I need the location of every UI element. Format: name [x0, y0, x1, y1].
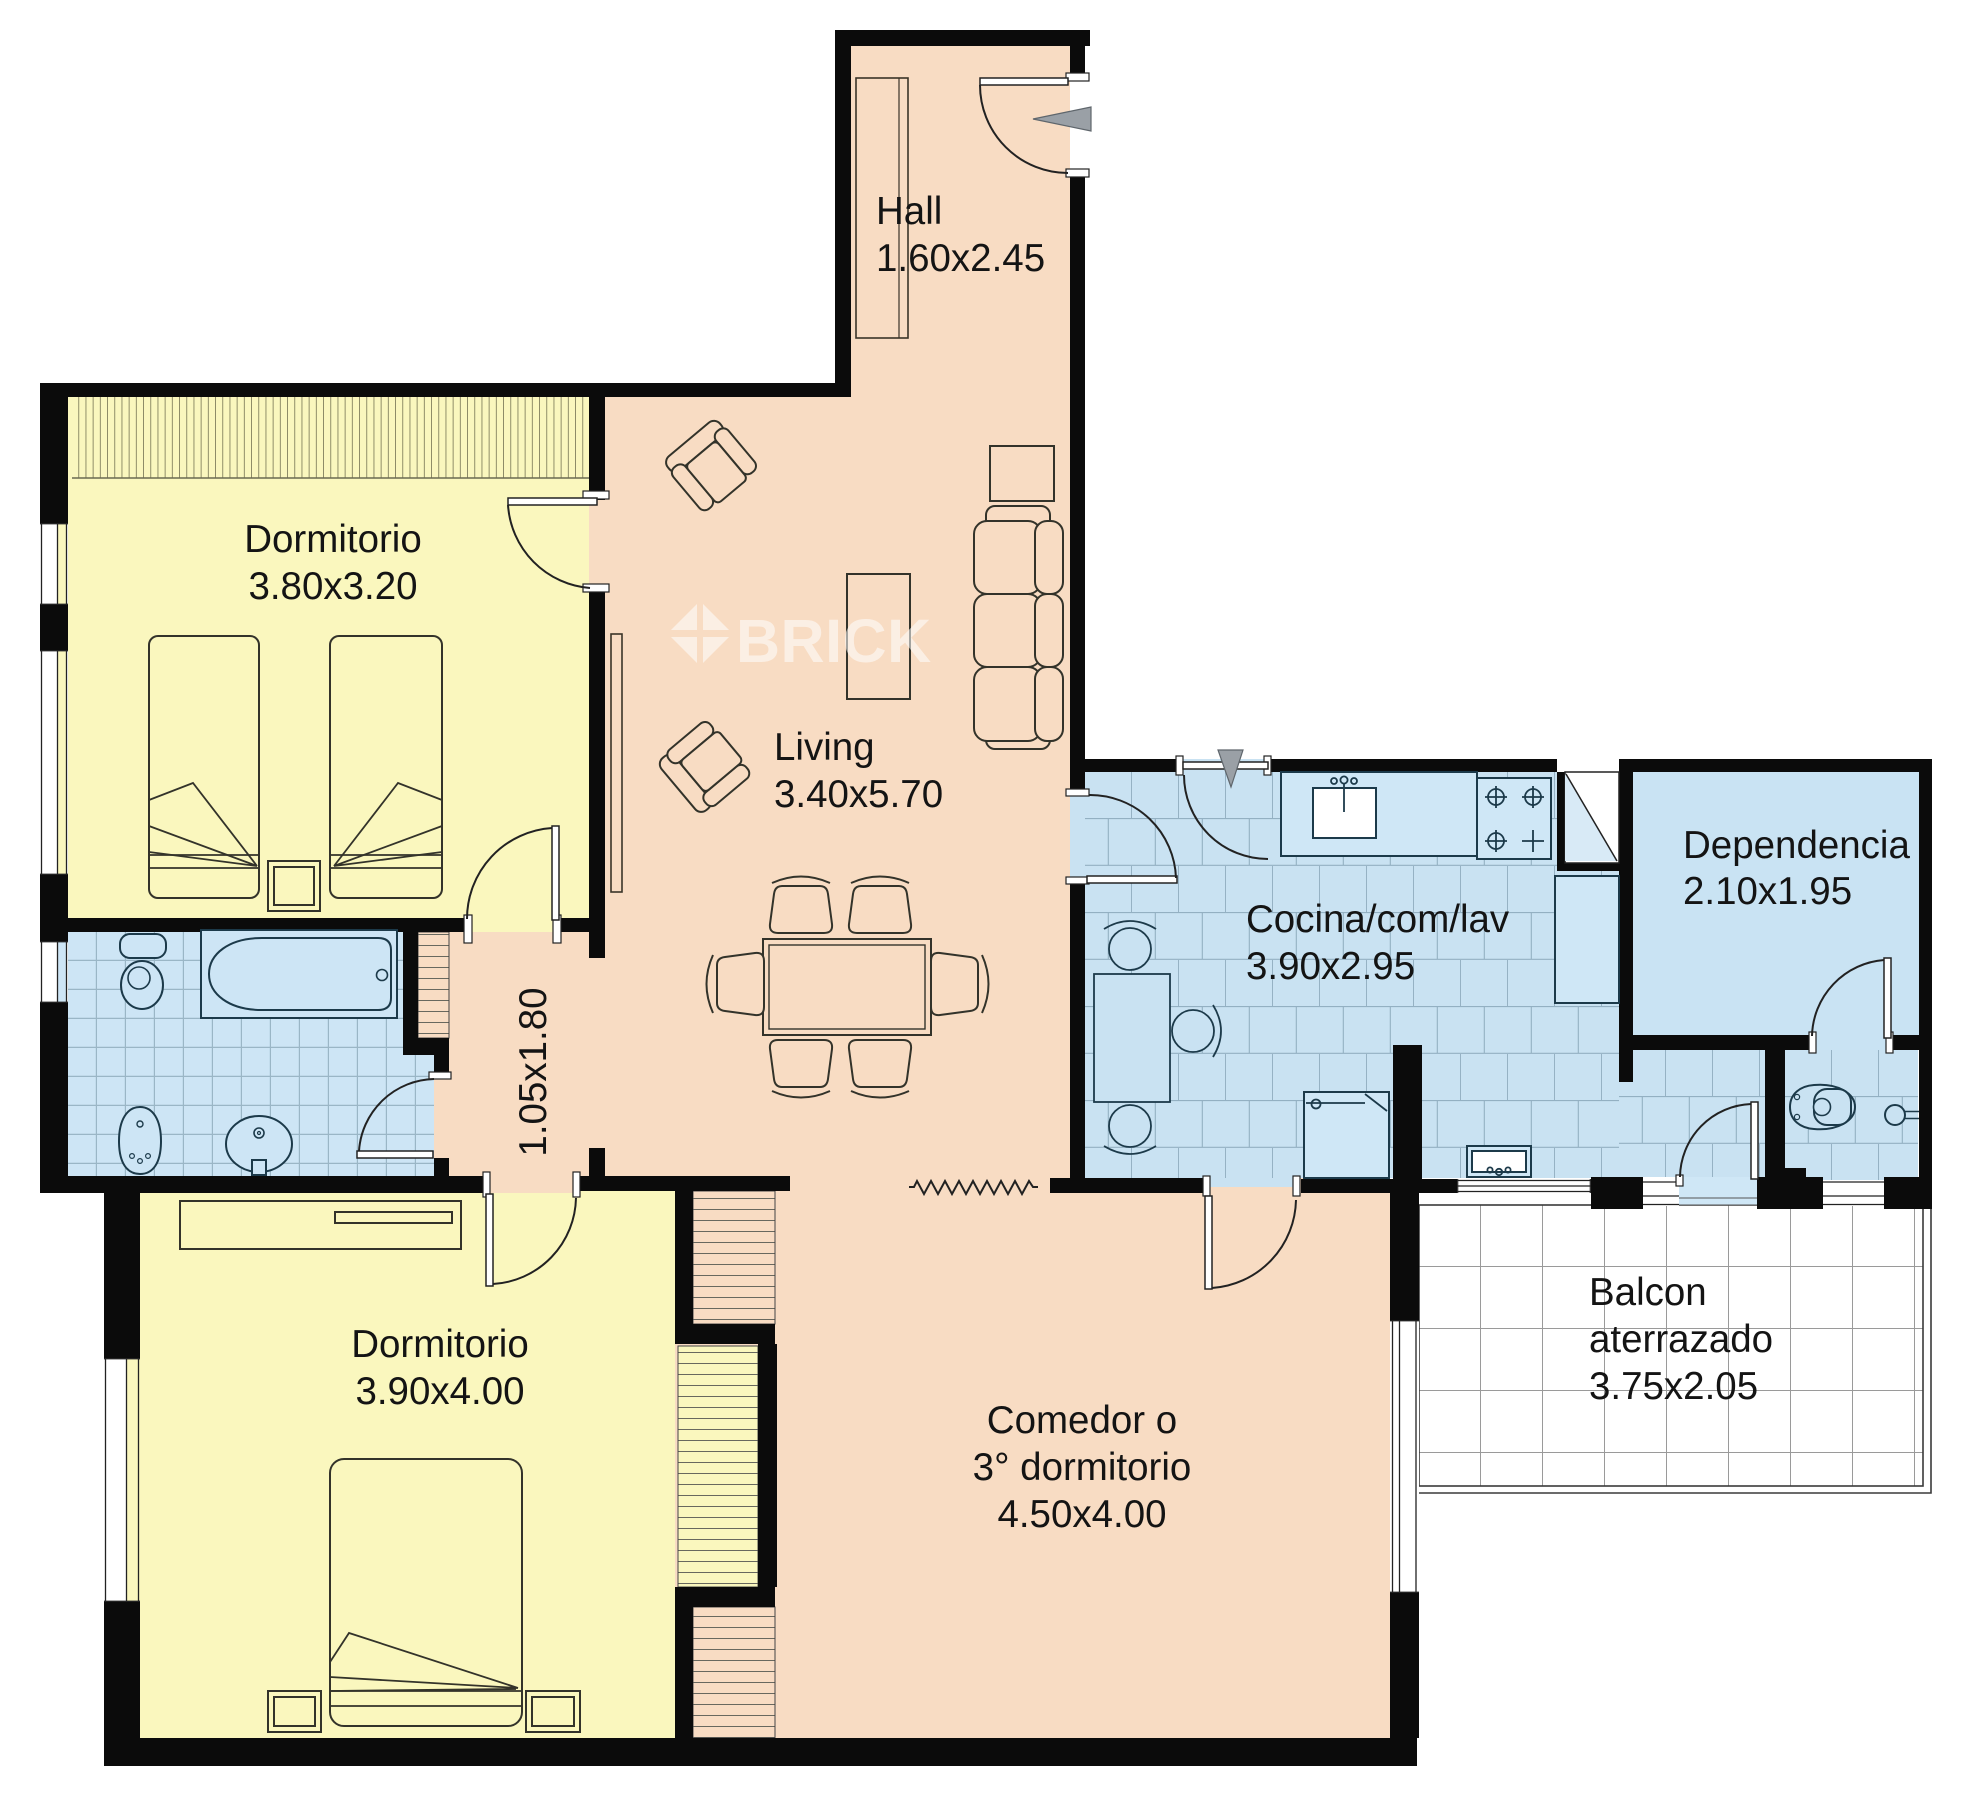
svg-text:4.50x4.00: 4.50x4.00 — [997, 1493, 1166, 1536]
svg-text:Dependencia: Dependencia — [1683, 824, 1910, 867]
svg-text:Cocina/com/lav: Cocina/com/lav — [1246, 898, 1510, 941]
svg-text:Comedor o: Comedor o — [987, 1399, 1177, 1442]
svg-text:Balcon: Balcon — [1589, 1271, 1707, 1314]
svg-text:aterrazado: aterrazado — [1589, 1318, 1773, 1361]
svg-text:3° dormitorio: 3° dormitorio — [973, 1446, 1192, 1489]
svg-text:3.75x2.05: 3.75x2.05 — [1589, 1365, 1758, 1408]
svg-text:Hall: Hall — [876, 190, 942, 233]
svg-text:2.10x1.95: 2.10x1.95 — [1683, 870, 1852, 913]
svg-text:3.40x5.70: 3.40x5.70 — [774, 773, 943, 816]
svg-text:Dormitorio: Dormitorio — [244, 518, 422, 561]
svg-text:3.90x4.00: 3.90x4.00 — [355, 1370, 524, 1413]
svg-text:Dormitorio: Dormitorio — [351, 1323, 529, 1366]
svg-text:BRICK: BRICK — [736, 607, 932, 675]
svg-text:1.05x1.80: 1.05x1.80 — [512, 987, 555, 1156]
svg-text:1.60x2.45: 1.60x2.45 — [876, 237, 1045, 280]
svg-text:Living: Living — [774, 726, 875, 769]
svg-text:3.80x3.20: 3.80x3.20 — [248, 565, 417, 608]
svg-text:3.90x2.95: 3.90x2.95 — [1246, 945, 1415, 988]
